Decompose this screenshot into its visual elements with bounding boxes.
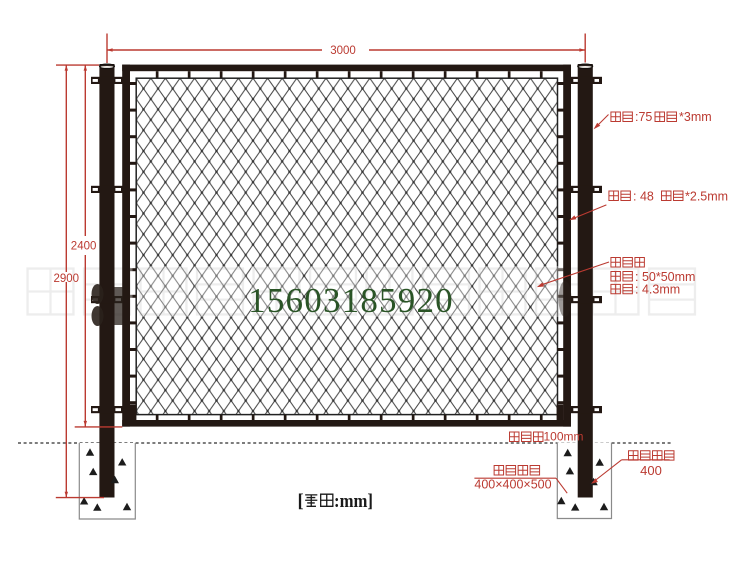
svg-text:400×400×500: 400×400×500 bbox=[474, 478, 551, 492]
svg-text:100mm: 100mm bbox=[544, 430, 584, 444]
svg-text:2900: 2900 bbox=[54, 273, 80, 285]
svg-text::75: :75 bbox=[635, 110, 652, 124]
svg-text:: 48: : 48 bbox=[633, 190, 654, 204]
svg-text:400: 400 bbox=[640, 463, 662, 478]
svg-text:3000: 3000 bbox=[330, 45, 356, 57]
svg-text:: 4.3mm: : 4.3mm bbox=[635, 283, 680, 297]
svg-text:2400: 2400 bbox=[71, 241, 97, 253]
svg-text:*3mm: *3mm bbox=[679, 110, 712, 124]
svg-text::mm]: :mm] bbox=[334, 492, 373, 512]
svg-text:[: [ bbox=[298, 492, 304, 512]
svg-text:15603185920: 15603185920 bbox=[248, 281, 454, 320]
svg-text:*2.5mm: *2.5mm bbox=[685, 190, 728, 204]
